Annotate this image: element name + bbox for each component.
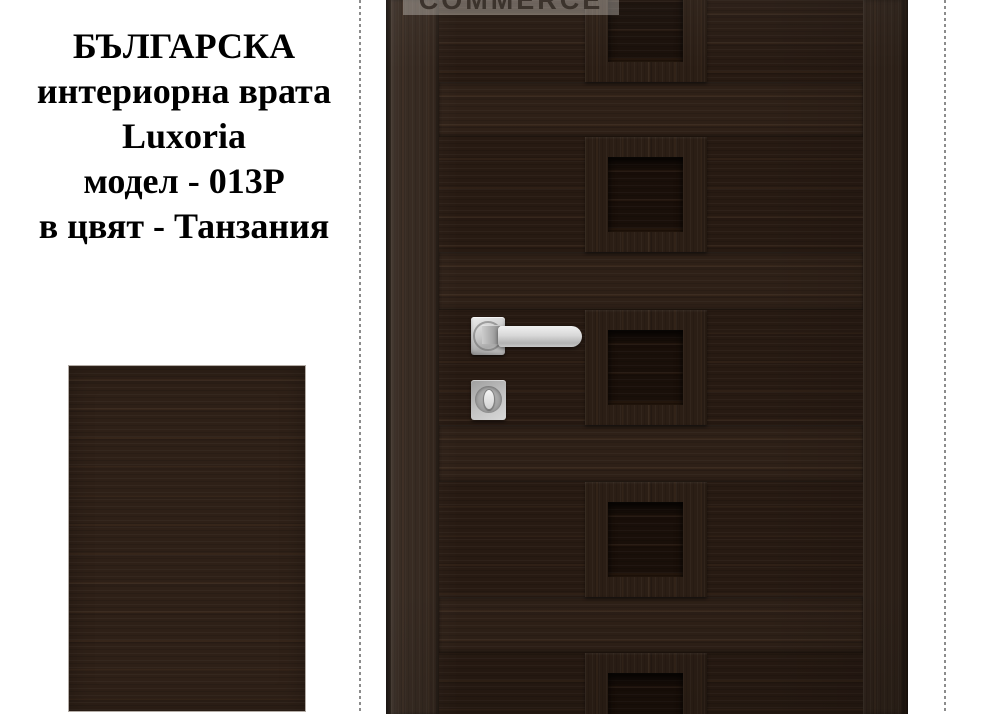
door-edge-left: [386, 0, 391, 714]
separator-dashed-right: [944, 0, 946, 714]
door-panel-recess: [608, 0, 683, 62]
door-stile-right: [863, 0, 905, 714]
door-panel-recess: [608, 330, 683, 405]
door-edge-right: [905, 0, 908, 714]
thumbturn-knob: [483, 389, 495, 410]
door-stile-left: [391, 0, 439, 714]
door-photo: COMMERCE: [386, 0, 908, 714]
keyhole-escutcheon: [471, 380, 506, 420]
door-rail: [439, 82, 863, 137]
escutcheon-circle: [475, 386, 502, 413]
separator-dashed-left: [359, 0, 361, 714]
title-line-brand: Luxoria: [2, 114, 366, 159]
door-panel-frame: [585, 310, 707, 425]
door-panel-recess: [608, 502, 683, 577]
door-panel-recess: [608, 673, 683, 714]
door-rail: [439, 425, 863, 482]
color-swatch: [68, 365, 306, 712]
door-panel-frame: [585, 653, 707, 714]
page: БЪЛГАРСКА интериорна врата Luxoria модел…: [0, 0, 1000, 714]
door-panel-recess: [608, 157, 683, 232]
watermark-band: COMMERCE: [403, 0, 619, 15]
door-panel-frame: [585, 137, 707, 252]
product-title: БЪЛГАРСКА интериорна врата Luxoria модел…: [2, 24, 366, 249]
watermark-text: COMMERCE: [403, 0, 619, 14]
door-panel-frame: [585, 482, 707, 597]
title-line-color: в цвят - Танзания: [2, 204, 366, 249]
door-rail: [439, 597, 863, 653]
title-line-model: модел - 013P: [2, 159, 366, 204]
door-rail: [439, 252, 863, 310]
title-line-type: интериорна врата: [2, 69, 366, 114]
door-handle-lever: [498, 326, 582, 347]
title-line-origin: БЪЛГАРСКА: [2, 24, 366, 69]
